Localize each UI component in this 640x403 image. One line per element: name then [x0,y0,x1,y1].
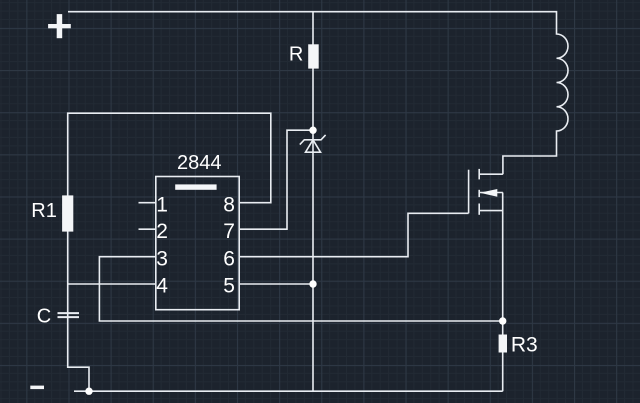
svg-text:6: 6 [223,247,235,270]
svg-text:C: C [37,306,51,328]
svg-text:R1: R1 [31,200,57,222]
svg-text:2: 2 [156,220,168,243]
svg-text:R: R [289,44,303,66]
svg-text:R3: R3 [511,333,538,356]
svg-text:4: 4 [156,275,168,298]
svg-text:2844: 2844 [177,152,222,174]
svg-text:1: 1 [156,193,168,216]
svg-text:7: 7 [223,220,235,243]
svg-text:8: 8 [223,193,235,216]
svg-text:3: 3 [156,247,168,270]
svg-text:5: 5 [223,275,235,298]
